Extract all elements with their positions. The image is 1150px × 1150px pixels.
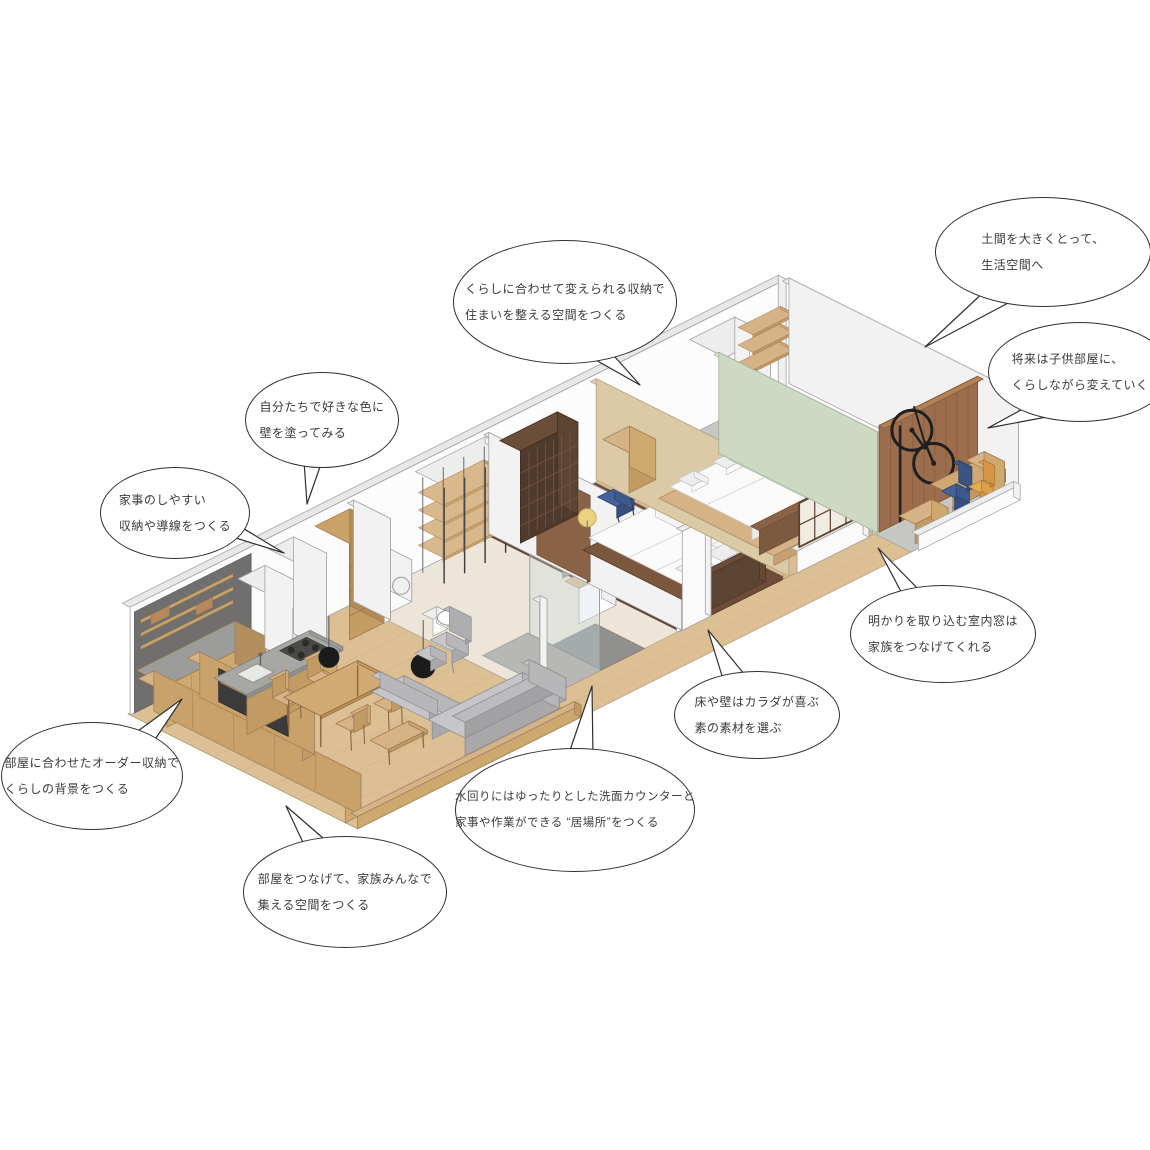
bubble-text-line: 素の素材を選ぶ [694,715,782,741]
bubble-text-line: 家族をつなげてくれる [868,634,993,660]
bubble-text-line: 生活空間へ [981,252,1044,278]
bubble-text-line: 床や壁はカラダが喜ぶ [694,689,819,715]
bubble-text-line: 明かりを取り込む室内窓は [868,608,1018,634]
isometric-floor-plan [0,0,1150,1150]
speech-bubble-doma: 土間を大きくとって、生活空間へ [935,197,1150,307]
bubble-text-line: 部屋に合わせたオーダー収納で [4,750,179,776]
speech-bubble-order-storage: 部屋に合わせたオーダー収納でくらしの背景をつくる [1,722,183,830]
speech-bubble-housework: 家事のしやすい収納や導線をつくる [100,467,250,559]
speech-bubble-water-area: 水回りにはゆったりとした洗面カウンターと家事や作業ができる “居場所”をつくる [455,748,695,872]
speech-bubble-paint-wall: 自分たちで好きな色に壁を塗ってみる [245,372,399,468]
bubble-text-line: 住まいを整える空間をつくる [465,302,627,328]
speech-bubble-interior-window: 明かりを取り込む室内窓は家族をつなげてくれる [850,585,1036,683]
bubble-text-line: 家事のしやすい [119,487,206,513]
speech-bubble-connect-rooms: 部屋をつなげて、家族みんなで集える空間をつくる [243,836,447,948]
bubble-text-line: 水回りにはゆったりとした洗面カウンターと [455,784,695,810]
bubble-text-line: くらしの背景をつくる [4,776,129,802]
speech-bubble-closet: くらしに合わせて変えられる収納で住まいを整える空間をつくる [453,240,677,364]
bubble-text-line: くらしに合わせて変えられる収納で [465,276,665,302]
bubble-text-line: 家事や作業ができる “居場所”をつくる [455,810,659,836]
bubble-text-line: 土間を大きくとって、 [981,226,1104,252]
bubble-text-line: 壁を塗ってみる [259,420,346,446]
bubble-text-line: 将来は子供部屋に、 [1012,346,1124,372]
bubble-text-line: 自分たちで好きな色に [259,394,384,420]
bubble-text-line: 部屋をつなげて、家族みんなで [258,866,432,892]
bubble-text-line: 集える空間をつくる [258,892,370,918]
bubble-text-line: 収納や導線をつくる [119,513,231,539]
floor-plan-page: 土間を大きくとって、生活空間へ 将来は子供部屋に、くらしながら変えていく くらし… [0,0,1150,1150]
bubble-text-line: くらしながら変えていく [1012,372,1149,398]
speech-bubble-materials: 床や壁はカラダが喜ぶ素の素材を選ぶ [674,671,840,759]
